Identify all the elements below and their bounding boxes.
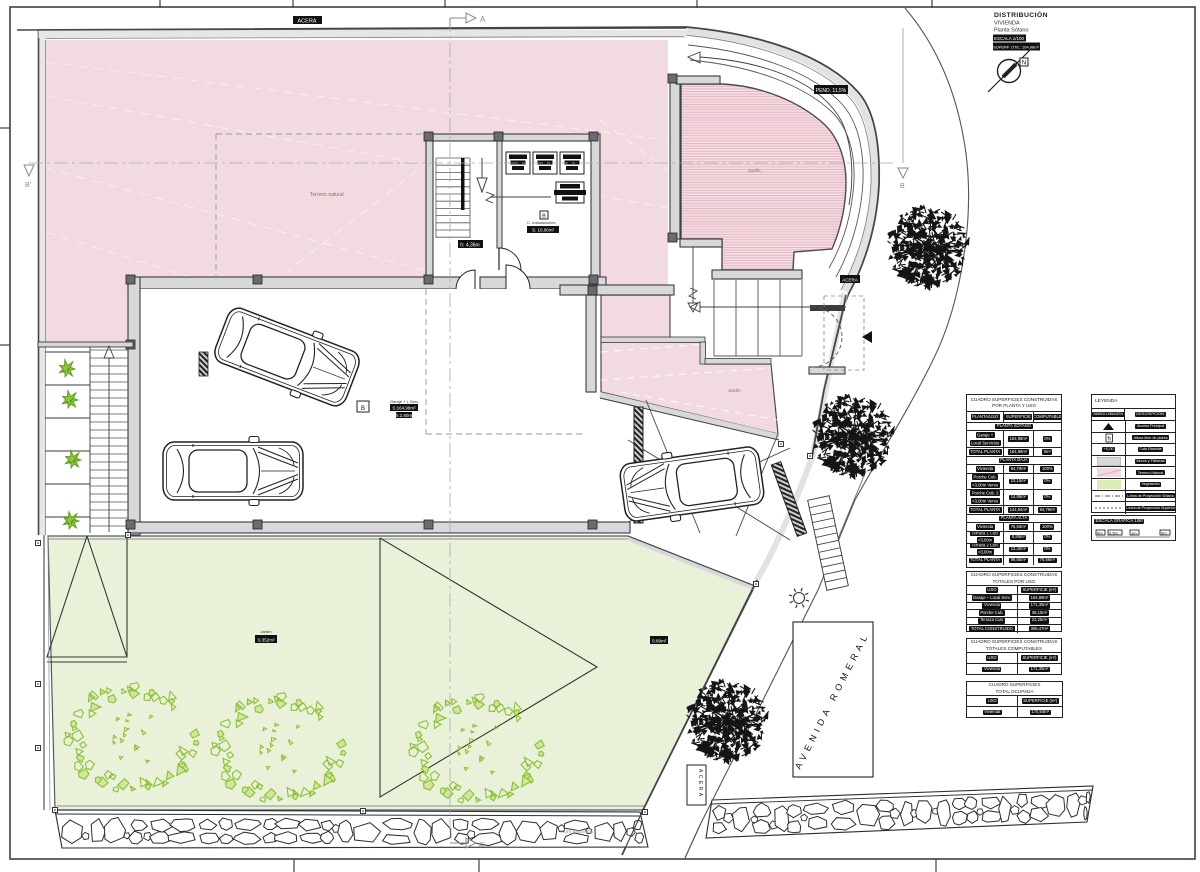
svg-text:DISTRIBUCIÓN: DISTRIBUCIÓN (994, 10, 1048, 19)
svg-text:h:2,80m: h:2,80m (396, 413, 413, 418)
svg-text:Jardín: Jardín (728, 388, 741, 393)
svg-text:ACERA: ACERA (298, 19, 317, 25)
svg-text:5m: 5m (1161, 530, 1167, 535)
svg-text:ESCALA 1/100: ESCALA 1/100 (994, 36, 1025, 41)
svg-text:Garaje + L.Serv.: Garaje + L.Serv. (390, 399, 419, 404)
svg-text:B: B (361, 406, 365, 412)
svg-text:PEND. 11,5%: PEND. 11,5% (816, 88, 847, 94)
svg-text:S:89m²: S:89m² (652, 639, 667, 644)
svg-text:N: N (1022, 61, 1026, 67)
svg-text:0,5m: 0,5m (1109, 530, 1119, 535)
svg-text:SUPERF. ÚTIL: 164,98m²: SUPERF. ÚTIL: 164,98m² (993, 45, 1039, 50)
svg-text:Jardín: Jardín (260, 629, 271, 634)
svg-text:S:352m²: S:352m² (257, 638, 275, 643)
svg-text:1m: 1m (1131, 530, 1137, 535)
svg-text:B’: B’ (25, 182, 32, 189)
svg-text:B: B (900, 183, 905, 190)
svg-text:Terreno natural: Terreno natural (310, 192, 344, 198)
svg-text:A’: A’ (479, 842, 485, 849)
svg-text:S: 10,66m²: S: 10,66m² (532, 228, 555, 233)
svg-text:S:164,98m²: S:164,98m² (392, 406, 416, 411)
svg-text:0m: 0m (1097, 530, 1103, 535)
svg-text:A: A (480, 15, 486, 24)
svg-text:h: 4,36m: h: 4,36m (460, 243, 479, 249)
svg-text:VIVIENDA: VIVIENDA (994, 21, 1020, 27)
svg-text:Planta Sótano: Planta Sótano (994, 28, 1029, 34)
svg-text:ACERA: ACERA (842, 278, 858, 283)
svg-text:muro escollera: muro escollera (560, 829, 593, 835)
svg-text:h: h (1107, 436, 1110, 442)
svg-text:Jardín: Jardín (748, 168, 761, 173)
svg-text:C. Instalaciones: C. Instalaciones (527, 220, 555, 225)
svg-text:B: B (542, 214, 546, 220)
svg-text:ACERA: ACERA (697, 769, 703, 799)
